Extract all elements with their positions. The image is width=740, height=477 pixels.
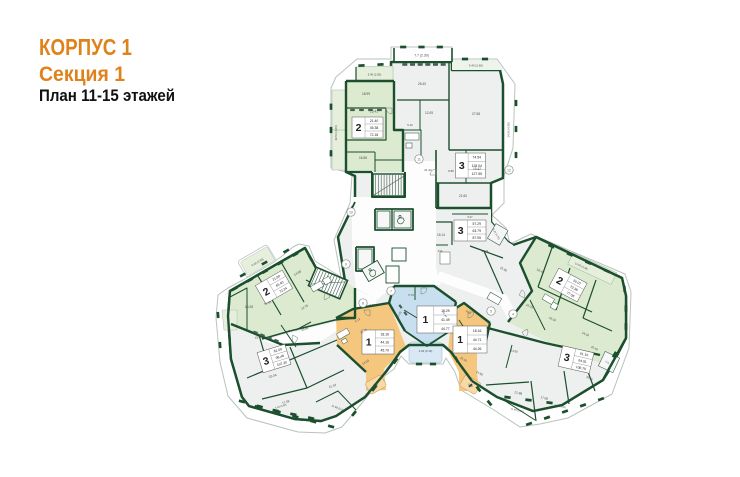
svg-text:5.70: 5.70 [408,293,414,297]
svg-text:10.21: 10.21 [481,249,489,253]
svg-text:1: 1 [457,334,463,346]
svg-text:КОРПУС 1: КОРПУС 1 [39,34,132,60]
svg-text:4: 4 [512,312,514,316]
svg-text:57.29: 57.29 [472,222,481,226]
svg-text:5: 5 [490,309,492,313]
svg-text:21.40: 21.40 [370,119,379,123]
svg-text:45.70: 45.70 [380,348,389,352]
svg-text:16.56: 16.56 [359,156,367,160]
svg-text:27.58: 27.58 [472,112,480,116]
svg-text:44.77: 44.77 [441,327,450,331]
svg-text:11: 11 [417,157,421,161]
svg-text:5.40 (2.60): 5.40 (2.60) [469,64,483,68]
svg-text:15.14: 15.14 [437,233,445,237]
svg-text:1: 1 [422,314,428,326]
svg-text:3: 3 [459,160,465,172]
svg-text:12: 12 [507,168,511,172]
svg-text:45.38: 45.38 [370,126,379,130]
svg-text:Секция 1: Секция 1 [39,62,125,86]
svg-text:41.49: 41.49 [441,318,450,322]
svg-text:87.95: 87.95 [472,236,481,240]
svg-text:5.27: 5.27 [467,215,473,219]
svg-text:14.56 (4.39): 14.56 (4.39) [507,122,511,137]
svg-text:8: 8 [362,301,364,305]
svg-text:12.05: 12.05 [425,111,433,115]
svg-text:44.26: 44.26 [473,347,482,351]
svg-text:7.7 (2.30): 7.7 (2.30) [414,54,429,58]
svg-text:8.89: 8.89 [448,169,454,173]
svg-text:15.42: 15.42 [473,167,481,171]
svg-text:127.55: 127.55 [472,172,482,176]
svg-text:2: 2 [356,122,362,134]
svg-text:16.08: 16.08 [245,305,253,309]
svg-text:25.40: 25.40 [418,82,426,86]
svg-text:9: 9 [345,262,347,266]
svg-text:1: 1 [366,337,372,349]
svg-text:План 11-15 этажей: План 11-15 этажей [39,87,175,105]
svg-text:10.53 (4.06): 10.53 (4.06) [334,125,338,141]
svg-text:72.18: 72.18 [370,133,379,137]
svg-text:18.16: 18.16 [473,329,482,333]
svg-text:5.40: 5.40 [227,317,231,323]
svg-text:44.16: 44.16 [380,340,389,344]
svg-text:74.54: 74.54 [473,156,482,160]
svg-text:7: 7 [390,289,392,293]
svg-text:21.60: 21.60 [459,194,467,198]
svg-text:2.48: 2.48 [369,303,375,307]
svg-text:44.71: 44.71 [473,338,482,342]
svg-text:63.79: 63.79 [472,229,481,233]
svg-text:4.04 (3.10): 4.04 (3.10) [419,349,433,353]
svg-text:3: 3 [458,225,464,237]
svg-text:5.40 (2.80): 5.40 (2.80) [368,73,382,77]
svg-text:5.10: 5.10 [407,123,413,127]
svg-text:18.16: 18.16 [380,332,389,336]
svg-text:18.99: 18.99 [362,92,370,96]
svg-text:10: 10 [349,210,353,214]
